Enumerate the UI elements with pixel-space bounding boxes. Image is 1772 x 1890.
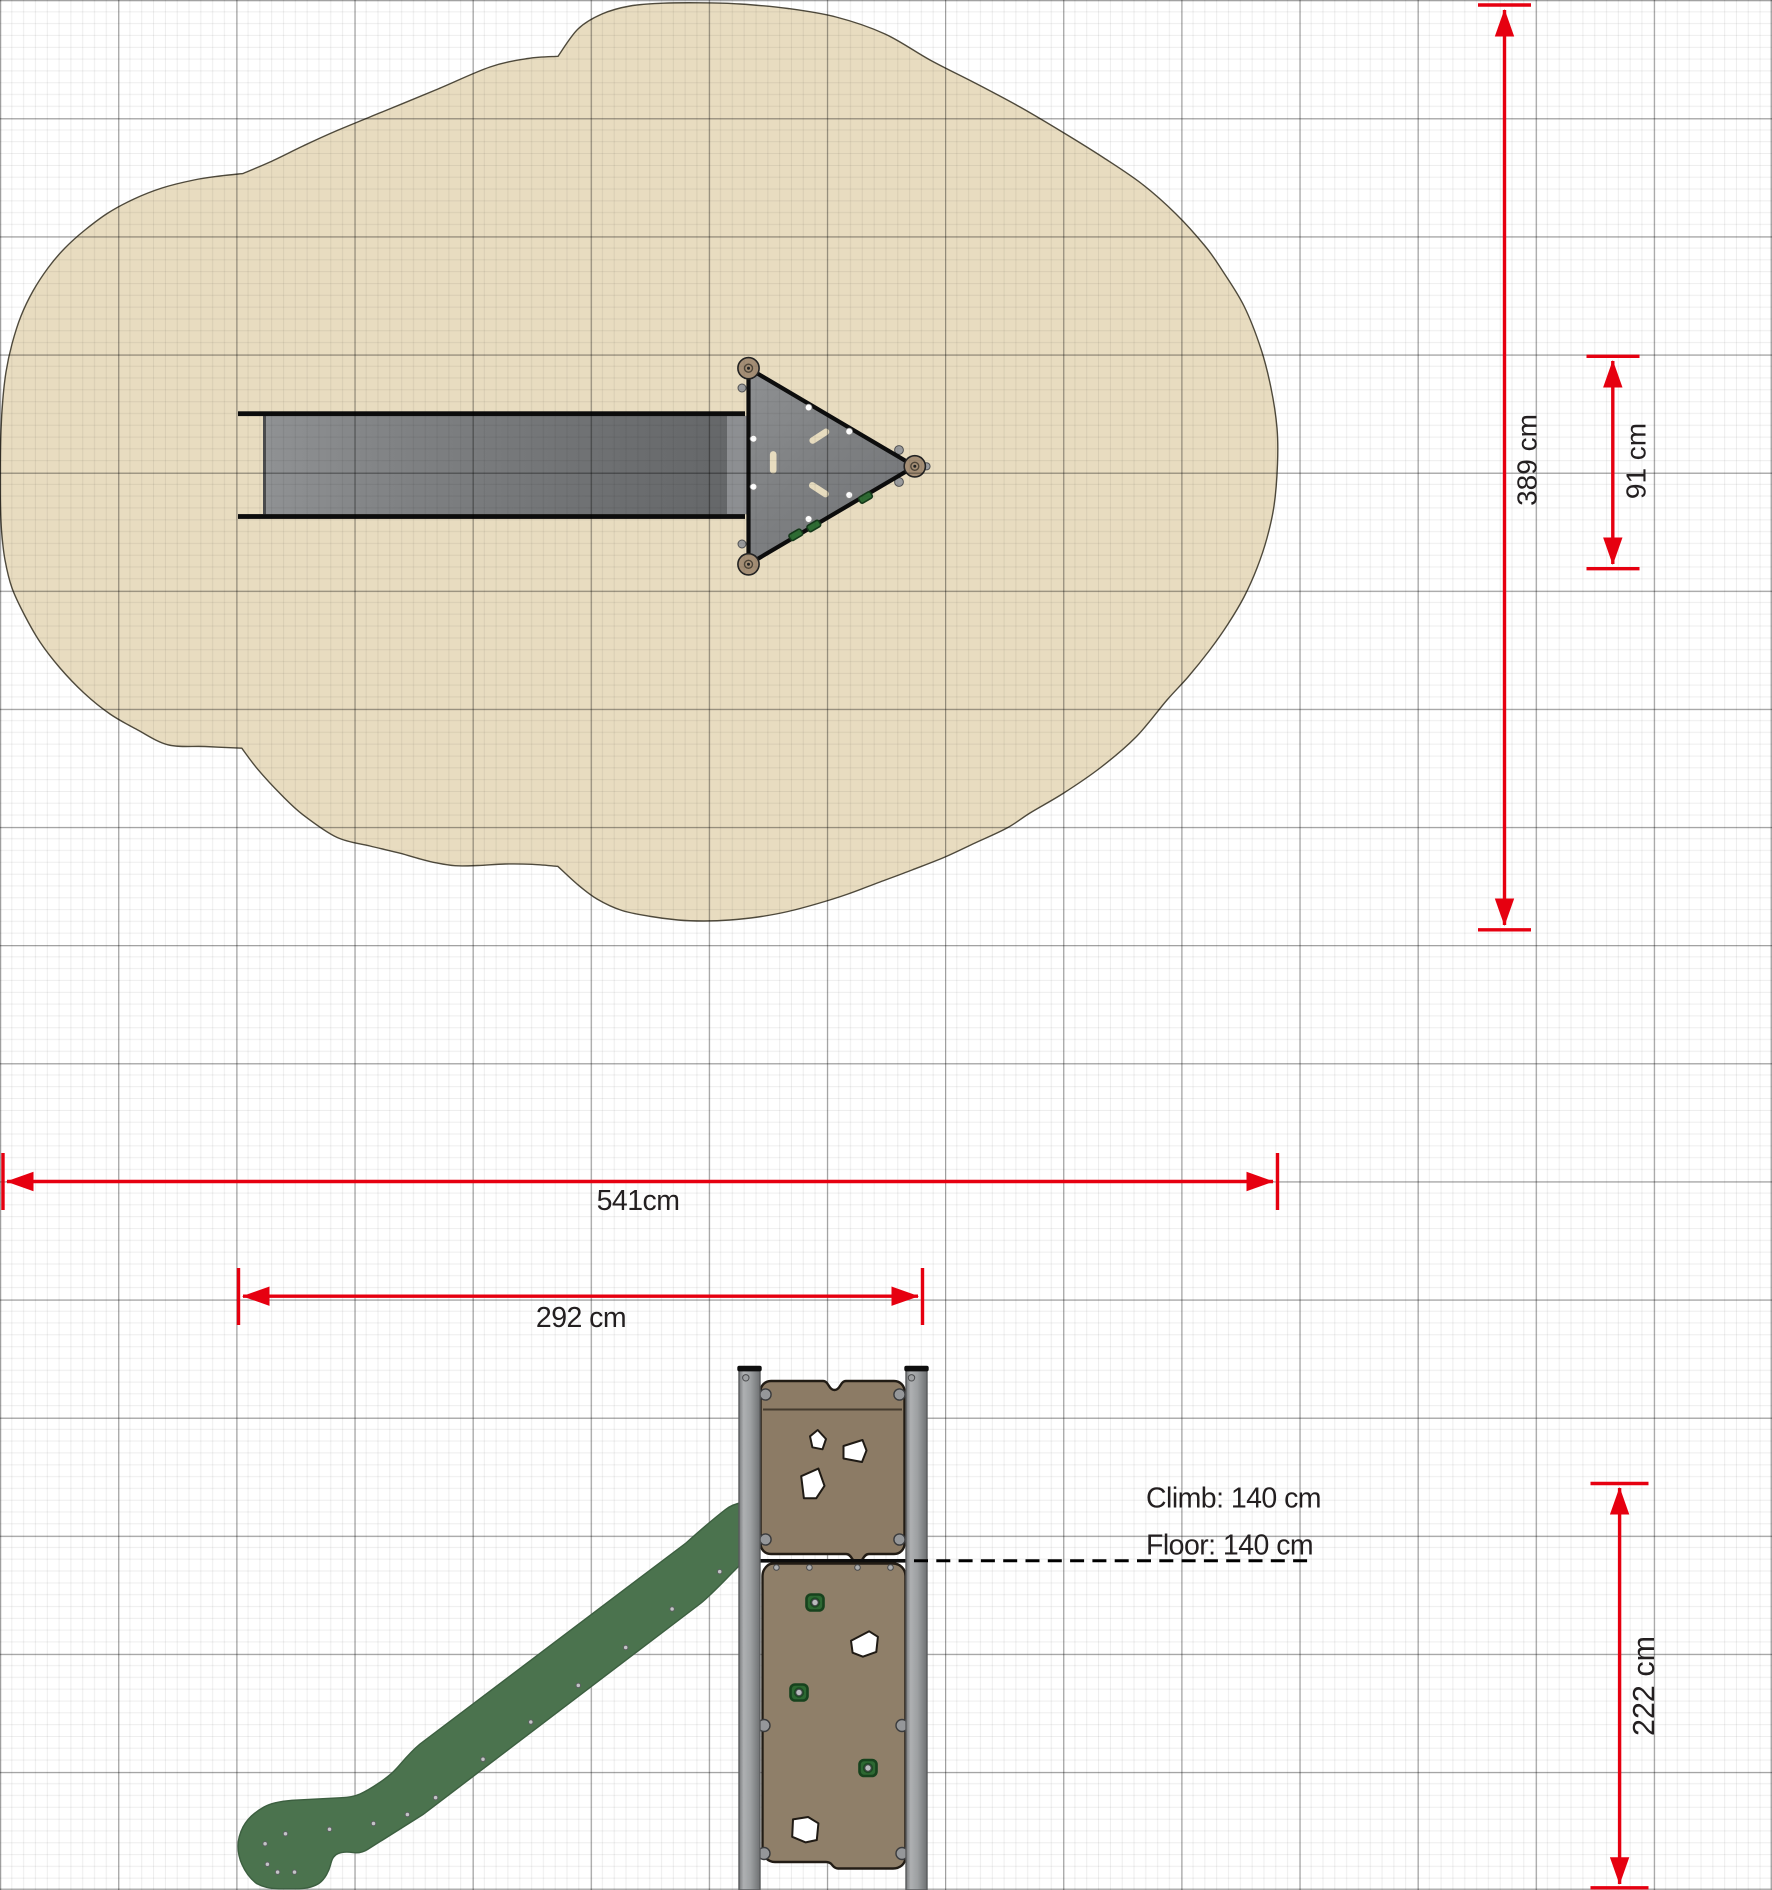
svg-text:Floor: 140 cm: Floor: 140 cm bbox=[1146, 1530, 1313, 1562]
svg-text:91 cm: 91 cm bbox=[1621, 423, 1652, 499]
svg-text:389 cm: 389 cm bbox=[1512, 414, 1543, 506]
svg-text:292 cm: 292 cm bbox=[536, 1302, 626, 1334]
svg-text:222 cm: 222 cm bbox=[1627, 1636, 1661, 1736]
svg-text:Climb: 140 cm: Climb: 140 cm bbox=[1146, 1483, 1321, 1515]
svg-text:541cm: 541cm bbox=[597, 1185, 680, 1217]
